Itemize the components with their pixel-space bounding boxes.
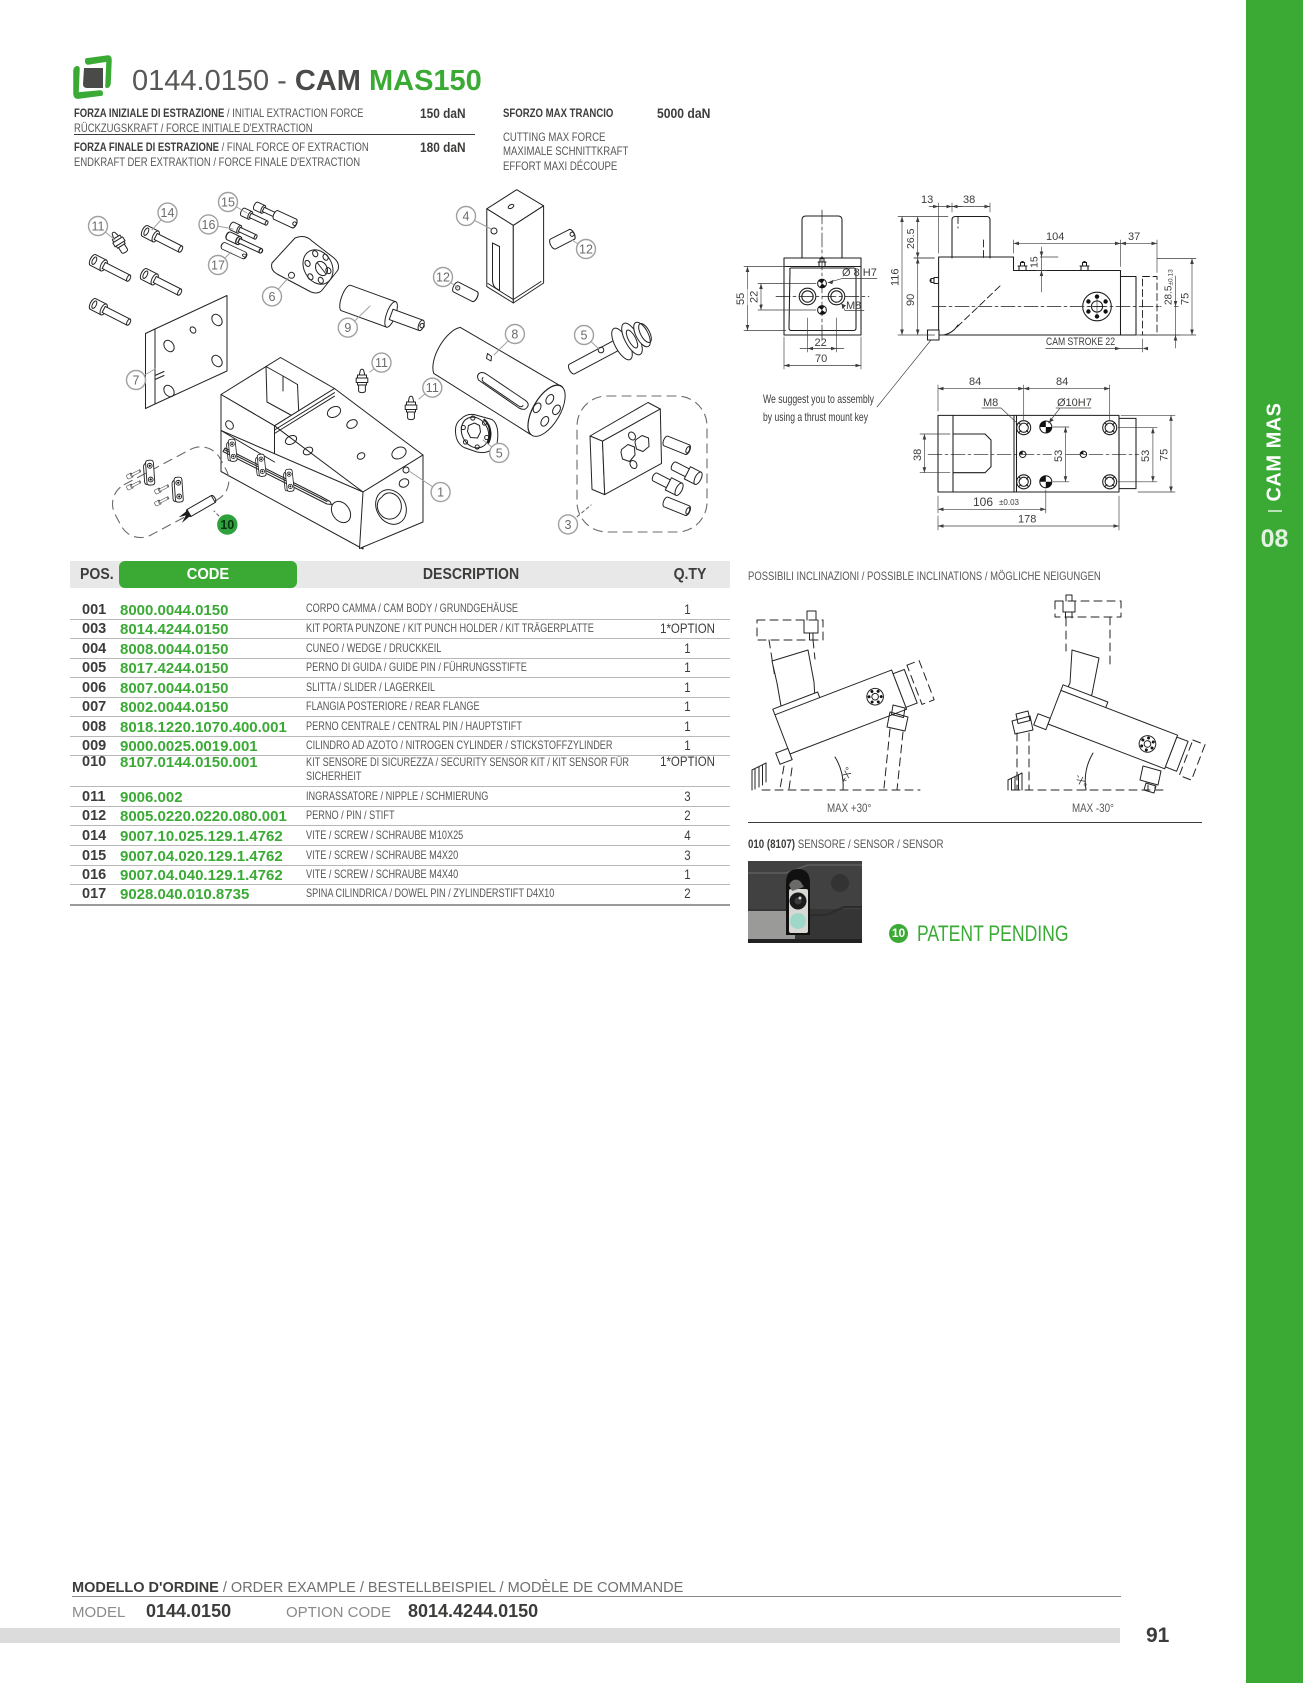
svg-text:84: 84	[969, 376, 981, 388]
svg-text:1: 1	[437, 486, 444, 500]
svg-text:CAM STROKE 22: CAM STROKE 22	[1046, 336, 1115, 348]
svg-text:9: 9	[344, 321, 351, 335]
svg-text:+X°: +X°	[839, 766, 856, 786]
svg-text:Ø10H7: Ø10H7	[1057, 397, 1092, 409]
svg-text:3: 3	[565, 518, 572, 532]
svg-text:22: 22	[749, 291, 761, 303]
svg-text:22: 22	[815, 337, 827, 349]
svg-text:±0.03: ±0.03	[999, 498, 1020, 507]
svg-text:M8: M8	[983, 397, 998, 409]
svg-text:Ø 8 H7: Ø 8 H7	[842, 267, 877, 279]
svg-text:75: 75	[1180, 293, 1192, 305]
svg-text:8: 8	[511, 328, 518, 342]
svg-text:5: 5	[496, 446, 503, 460]
svg-text:6: 6	[269, 290, 276, 304]
svg-text:70: 70	[815, 353, 827, 365]
svg-text:11: 11	[375, 356, 388, 370]
svg-text:17: 17	[211, 259, 225, 273]
svg-text:37: 37	[1128, 231, 1140, 243]
svg-text:10: 10	[220, 518, 234, 532]
svg-text:178: 178	[1018, 514, 1036, 526]
svg-text:38: 38	[963, 194, 975, 206]
svg-text:53: 53	[1140, 450, 1152, 462]
svg-text:90: 90	[905, 294, 917, 306]
svg-text:16: 16	[202, 218, 216, 232]
svg-text:12: 12	[436, 271, 450, 285]
svg-text:by using a thrust mount key: by using a thrust mount key	[763, 410, 868, 424]
svg-text:12: 12	[579, 243, 593, 257]
svg-text:7: 7	[133, 374, 140, 388]
svg-text:106: 106	[973, 495, 993, 509]
svg-text:53: 53	[1053, 450, 1065, 462]
svg-text:11: 11	[92, 220, 105, 234]
svg-text:84: 84	[1056, 376, 1068, 388]
svg-text:14: 14	[161, 206, 175, 220]
svg-text:We suggest you to assembly: We suggest you to assembly	[763, 392, 874, 406]
svg-text:5: 5	[581, 329, 588, 343]
svg-text:104: 104	[1046, 231, 1064, 243]
svg-text:26.5: 26.5	[905, 228, 917, 249]
svg-text:15: 15	[1029, 256, 1041, 268]
svg-text:4: 4	[463, 210, 470, 224]
svg-text:38: 38	[912, 449, 924, 461]
svg-text:15: 15	[221, 196, 235, 210]
svg-text:55: 55	[735, 293, 747, 305]
svg-text:116: 116	[890, 268, 902, 286]
svg-text:13: 13	[921, 194, 933, 206]
svg-text:11: 11	[426, 381, 439, 395]
svg-text:75: 75	[1158, 449, 1170, 461]
